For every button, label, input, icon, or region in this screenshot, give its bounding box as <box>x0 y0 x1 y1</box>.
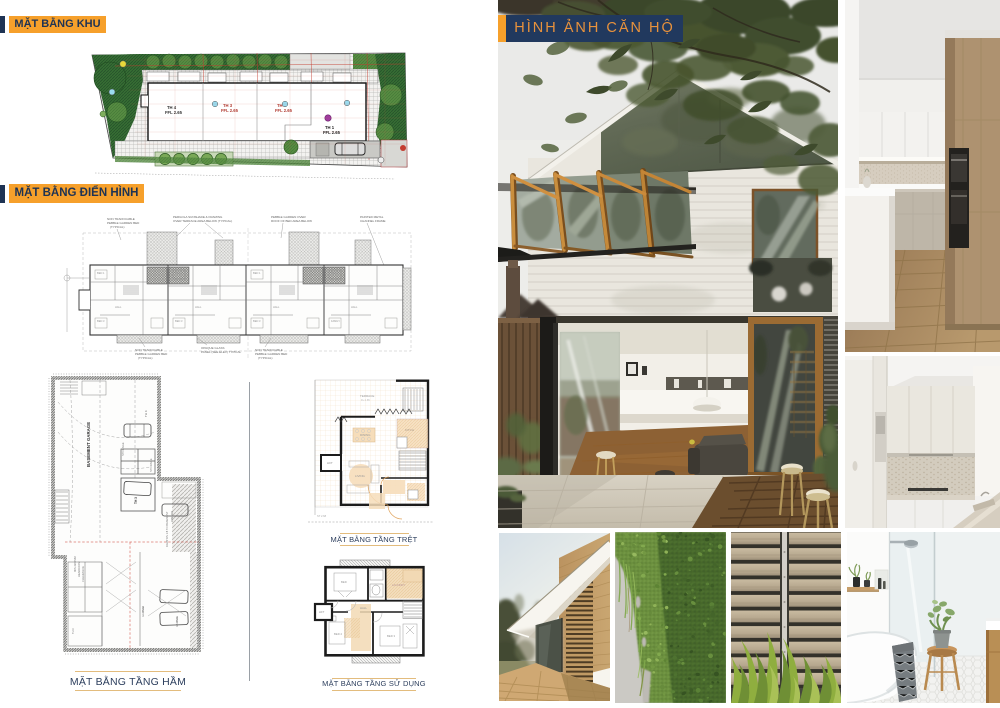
svg-text:LIFT: LIFT <box>319 610 325 614</box>
svg-text:KITCH: KITCH <box>405 428 414 432</box>
svg-text:BED 3: BED 3 <box>97 319 105 323</box>
svg-text:LAUNDRY: LAUNDRY <box>392 583 405 587</box>
svg-text:HALL: HALL <box>273 305 280 309</box>
svg-text:STORAGE: STORAGE <box>121 442 125 456</box>
svg-text:HALL: HALL <box>351 305 358 309</box>
svg-text:BED 2: BED 2 <box>334 632 343 636</box>
svg-text:BASEMENT GARAGE: BASEMENT GARAGE <box>86 422 91 467</box>
svg-text:(TYPICAL): (TYPICAL) <box>138 356 153 360</box>
svg-text:BED 1: BED 1 <box>97 271 105 275</box>
svg-text:BED 1: BED 1 <box>331 271 339 275</box>
svg-text:TERRACE: TERRACE <box>360 394 374 398</box>
svg-text:BED 1: BED 1 <box>253 271 261 275</box>
svg-text:TH 4: TH 4 <box>144 410 148 417</box>
svg-text:TH 3: TH 3 <box>134 497 138 504</box>
svg-text:BED 3: BED 3 <box>387 634 396 638</box>
svg-text:FL 2.65: FL 2.65 <box>361 398 370 402</box>
svg-text:VISITOR: VISITOR <box>170 511 174 522</box>
svg-text:BED: BED <box>341 580 347 584</box>
svg-text:FFL 2.65: FFL 2.65 <box>165 110 183 115</box>
svg-text:TH 3: TH 3 <box>71 628 75 634</box>
svg-text:HEADROOM: HEADROOM <box>77 562 81 577</box>
svg-text:DINING: DINING <box>360 433 371 437</box>
svg-text:BED 3: BED 3 <box>175 319 183 323</box>
svg-text:HALL: HALL <box>115 305 122 309</box>
svg-text:BED 1: BED 1 <box>175 271 183 275</box>
svg-text:HALL: HALL <box>195 305 202 309</box>
svg-text:FFL 2.65: FFL 2.65 <box>323 130 341 135</box>
svg-text:PANEL (SEE ELEV) TYPICAL: PANEL (SEE ELEV) TYPICAL <box>201 350 241 354</box>
svg-text:LIFT: LIFT <box>327 461 333 465</box>
svg-text:MIN 2200MM: MIN 2200MM <box>73 556 77 572</box>
svg-text:GARAGE: GARAGE <box>141 606 145 617</box>
svg-text:ROOF OF BED AREA BELOW: ROOF OF BED AREA BELOW <box>271 219 312 223</box>
svg-text:FAMILY: FAMILY <box>331 319 340 323</box>
svg-text:HALL: HALL <box>360 606 367 610</box>
svg-text:CHANNEL FRAME: CHANNEL FRAME <box>360 219 386 223</box>
svg-text:BED 3: BED 3 <box>253 319 261 323</box>
svg-text:(TYPICAL): (TYPICAL) <box>258 356 273 360</box>
svg-text:CLEARANCE: CLEARANCE <box>81 566 85 582</box>
svg-text:ST 2.68: ST 2.68 <box>317 514 327 518</box>
svg-text:LIVING: LIVING <box>355 474 366 478</box>
svg-text:RAMP DN 1:8 TO BASEMENT: RAMP DN 1:8 TO BASEMENT <box>165 511 169 547</box>
svg-text:(TYPICAL): (TYPICAL) <box>110 225 125 229</box>
svg-text:STORAGE: STORAGE <box>149 458 153 472</box>
svg-text:FFL 2.65: FFL 2.65 <box>221 108 239 113</box>
svg-text:OVER TERRACE AREA BELOW (TYPIC: OVER TERRACE AREA BELOW (TYPICAL) <box>173 219 232 223</box>
